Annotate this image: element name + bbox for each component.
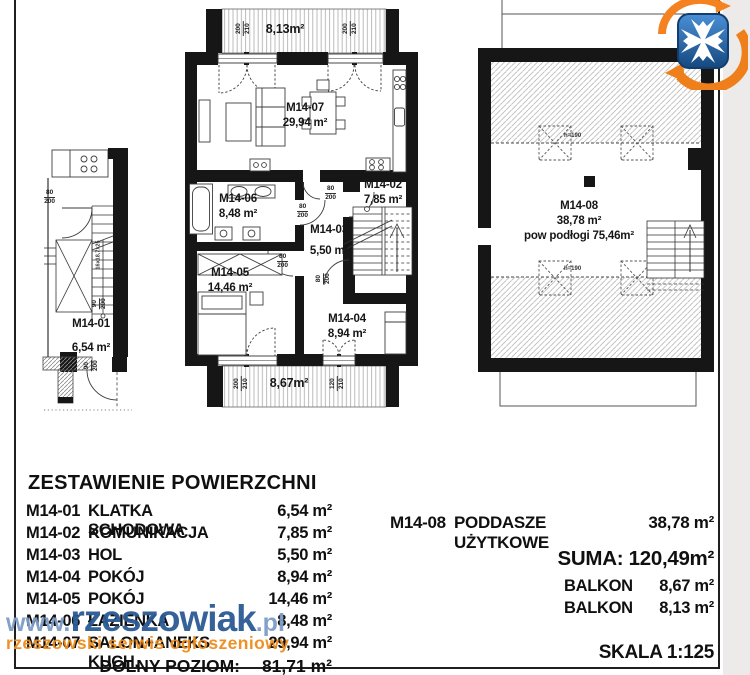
room-label-m14-01: M14-01 6,54 m² <box>56 317 126 356</box>
dim-window-200-210: 200210 <box>233 376 250 391</box>
attic-height-label: h=190 <box>564 266 581 272</box>
stair-dimension-note: 16x18,7x25 <box>96 240 102 269</box>
watermark-tagline: rzeszowski serwis ogłoszeniowy <box>6 633 289 654</box>
dim-door-80-200: 80200 <box>297 203 308 220</box>
dim-window-200-210: 200210 <box>235 21 252 36</box>
room-label-m14-05: M14-05 14,46 m² <box>192 266 268 296</box>
dim-window-200-210: 200210 <box>342 21 359 36</box>
logo-shield <box>678 14 728 68</box>
dim-door-80-200: 80200 <box>44 189 55 206</box>
table-row: BALKON8,13 m² <box>564 599 714 621</box>
dim-door-90-200: 90200 <box>83 360 100 371</box>
balcony-top-area-label: 8,13m² <box>252 21 318 37</box>
floor-plan-sheet: 8,13m² M14-07 29,94 m² M14-06 8,48 m² M1… <box>0 0 750 675</box>
balcony-bottom-area-label: 8,67m² <box>256 375 322 391</box>
attic-height-label: h=190 <box>564 133 581 139</box>
room-label-m14-06: M14-06 8,48 m² <box>201 192 275 222</box>
table-row: M14-08PODDASZE UŻYTKOWE38,78 m² <box>390 513 714 537</box>
attic-summary-block: M14-08PODDASZE UŻYTKOWE38,78 m² SUMA: 12… <box>390 513 714 621</box>
rzeszowiak-logo <box>652 0 748 90</box>
table-row: BALKON8,67 m² <box>564 577 714 599</box>
room-label-m14-04: M14-04 8,94 m² <box>314 312 380 342</box>
table-row: M14-03HOL5,50 m² <box>26 546 332 568</box>
dim-door-90-200: 90200 <box>91 298 108 309</box>
dim-door-80-200: 80200 <box>325 185 336 202</box>
scale-label: SKALA 1:125 <box>598 642 714 664</box>
dim-door-80-200: 80200 <box>277 253 288 270</box>
balcony-rows: BALKON8,67 m² BALKON8,13 m² <box>564 577 714 621</box>
table-row: M14-04POKÓJ8,94 m² <box>26 568 332 590</box>
watermark: www.rzeszowiak.pl rzeszowski serwis ogło… <box>6 598 289 654</box>
summary-total-row: DOLNY POZIOM:81,71 m² <box>26 656 332 675</box>
room-label-m14-03: M14-03 5,50 m² <box>300 223 358 259</box>
room-label-m14-07: M14-07 29,94 m² <box>263 101 347 131</box>
summary-title: ZESTAWIENIE POWIERZCHNI <box>28 472 332 495</box>
room-label-m14-02: M14-02 7,85 m² <box>351 178 415 208</box>
dim-door-80-200: 80200 <box>315 273 332 284</box>
table-row: M14-02KOMUNIKACJA7,85 m² <box>26 524 332 546</box>
table-row: M14-01KLATKA SCHODOWA6,54 m² <box>26 502 332 524</box>
room-label-m14-08: M14-08 38,78 m² pow podłogi 75,46m² <box>506 199 652 244</box>
dim-window-120-210: 120210 <box>329 376 346 391</box>
